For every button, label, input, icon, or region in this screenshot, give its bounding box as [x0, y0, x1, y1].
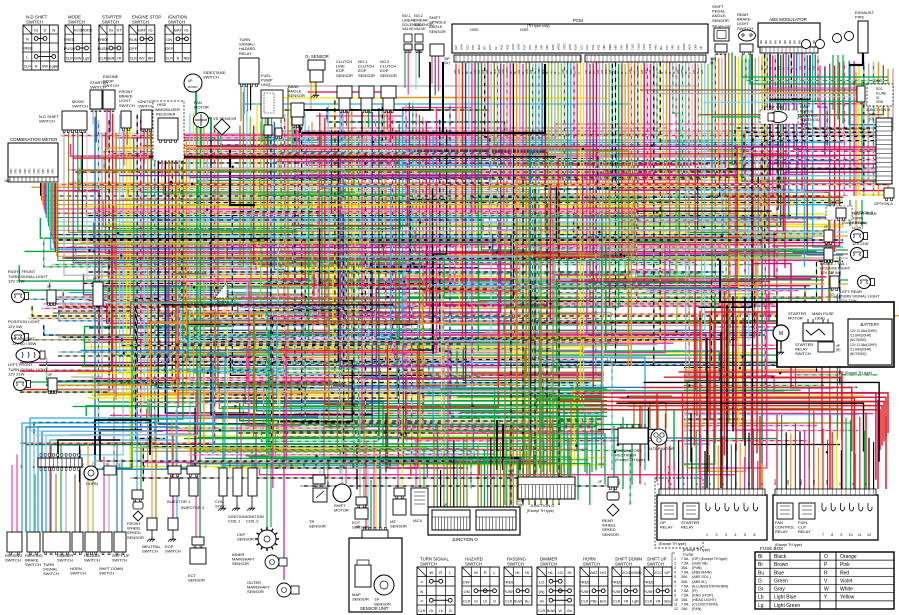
- svg-text:IMMOBILIZER: IMMOBILIZER: [155, 108, 180, 112]
- svg-text:CLR: CLR: [463, 600, 471, 604]
- svg-text:(CLOCK/TURN): (CLOCK/TURN): [692, 603, 718, 607]
- svg-text:SCS: SCS: [876, 87, 883, 91]
- svg-text:SPD: SPD: [41, 169, 45, 174]
- svg-text:R/W: R/W: [629, 69, 632, 74]
- svg-text:CLR: CLR: [166, 56, 174, 60]
- svg-text:Pink: Pink: [840, 562, 850, 568]
- svg-text:MAP: MAP: [477, 44, 481, 50]
- svg-text:LSV2: LSV2: [648, 43, 652, 50]
- svg-text:(Except TH type): (Except TH type): [527, 509, 554, 513]
- svg-text:GND: GND: [876, 100, 884, 104]
- svg-text:PIPE: PIPE: [855, 15, 864, 20]
- svg-text:Orange: Orange: [840, 554, 857, 560]
- svg-text:Bl: Bl: [758, 554, 762, 560]
- svg-text:PUSH: PUSH: [64, 46, 75, 51]
- svg-text:Black: Black: [774, 554, 787, 560]
- svg-text:ANG: ANG: [654, 44, 658, 50]
- svg-text:15A: 15A: [681, 598, 688, 602]
- svg-text:G/B: G/B: [601, 69, 604, 74]
- svg-text:G/B: G/B: [693, 69, 696, 74]
- svg-text:W/G: W/G: [542, 69, 545, 74]
- svg-text:G/B: G/B: [454, 69, 457, 74]
- svg-text:(W): (W): [518, 503, 523, 507]
- svg-text:SENSOR: SENSOR: [247, 589, 264, 594]
- svg-text:VALVE: VALVE: [800, 123, 812, 127]
- svg-text:Br: Br: [490, 71, 493, 74]
- svg-text:MODE: MODE: [81, 28, 93, 33]
- svg-text:Gr: Gr: [787, 67, 790, 70]
- svg-text:ABS: ABS: [614, 45, 618, 50]
- svg-text:IAT: IAT: [483, 46, 487, 50]
- svg-text:LgR: LgR: [632, 600, 639, 604]
- svg-text:SPD: SPD: [32, 169, 36, 174]
- svg-text:MR: MR: [783, 40, 787, 44]
- svg-text:CLR: CLR: [24, 65, 32, 69]
- svg-text:CLR: CLR: [538, 609, 546, 613]
- svg-text:SENSOR: SENSOR: [127, 535, 144, 540]
- svg-text:VCC: VCC: [654, 570, 663, 575]
- svg-text:M: M: [779, 331, 783, 337]
- svg-text:Br: Br: [522, 71, 525, 74]
- svg-text:Br: Br: [661, 71, 664, 74]
- svg-text:SENSOR: SENSOR: [712, 18, 729, 23]
- svg-text:IG: IG: [184, 28, 188, 33]
- svg-text:PCP: PCP: [522, 44, 526, 50]
- svg-text:SENSOR: SENSOR: [390, 524, 407, 529]
- svg-text:IG: IG: [109, 28, 113, 33]
- svg-text:12: 12: [867, 533, 871, 537]
- svg-text:CLU2: CLU2: [636, 43, 640, 50]
- svg-text:Y/R: Y/R: [253, 464, 257, 468]
- svg-text:SENSOR: SENSOR: [237, 537, 254, 542]
- svg-text:SWITCH: SWITCH: [25, 562, 41, 567]
- svg-text:SHIFT UP: SHIFT UP: [112, 554, 130, 558]
- svg-text:SPD: SPD: [671, 45, 675, 50]
- svg-text:SWITCH: SWITCH: [5, 558, 21, 563]
- svg-text:(NC750KD): (NC750KD): [850, 338, 866, 342]
- svg-text:R/W: R/W: [786, 479, 790, 485]
- svg-text:W/G: W/G: [761, 65, 764, 70]
- svg-text:HORN: HORN: [86, 481, 98, 486]
- svg-text:7: 7: [674, 584, 676, 588]
- svg-text:R/W: R/W: [413, 462, 417, 468]
- svg-text:(N): (N): [539, 589, 545, 594]
- svg-text:12: 12: [674, 607, 678, 611]
- svg-text:R: R: [695, 483, 699, 485]
- svg-text:CLU1: CLU1: [631, 43, 635, 50]
- svg-text:STRC: STRC: [562, 43, 566, 50]
- svg-text:Gr: Gr: [783, 67, 786, 70]
- svg-text:COIL 1: COIL 1: [228, 519, 241, 524]
- svg-text:7.5A: 7.5A: [681, 589, 689, 593]
- svg-text:G/B: G/B: [388, 463, 392, 468]
- svg-text:LG1: LG1: [579, 45, 583, 50]
- svg-text:SENSOR: SENSOR: [380, 73, 397, 78]
- svg-text:Bu/O: Bu/O: [773, 479, 777, 485]
- svg-text:RELAY: RELAY: [775, 529, 788, 534]
- svg-text:N: N: [420, 589, 423, 594]
- svg-text:FREE: FREE: [22, 46, 33, 51]
- svg-text:R/W: R/W: [812, 479, 816, 485]
- svg-text:G/B: G/B: [609, 69, 612, 74]
- svg-text:HO: HO: [600, 570, 606, 575]
- svg-text:UP: UP: [664, 570, 670, 575]
- svg-text:G/B: G/B: [302, 463, 306, 468]
- svg-text:3: 3: [725, 533, 727, 537]
- svg-text:Gr: Gr: [593, 71, 596, 74]
- svg-text:SENSOR: SENSOR: [336, 73, 353, 78]
- svg-text:O/B: O/B: [538, 69, 541, 74]
- svg-text:EVAP: EVAP: [800, 105, 810, 109]
- svg-text:SWITCH: SWITCH: [647, 562, 664, 567]
- svg-text:Gr: Gr: [774, 67, 777, 70]
- svg-text:12V 21W: 12V 21W: [8, 279, 25, 284]
- svg-text:OPTION A: OPTION A: [874, 201, 893, 206]
- svg-text:SWITCH: SWITCH: [132, 20, 149, 25]
- svg-text:BrG: BrG: [600, 600, 607, 604]
- svg-text:O: O: [493, 600, 496, 604]
- svg-text:IGP: IGP: [454, 45, 458, 50]
- svg-text:Violet: Violet: [840, 578, 853, 584]
- svg-text:MOTOR: MOTOR: [334, 508, 349, 513]
- svg-text:Lb: Lb: [439, 609, 443, 613]
- svg-text:YR: YR: [655, 600, 660, 604]
- svg-text:R/W: R/W: [526, 69, 529, 74]
- svg-text:SHIFT DOWN: SHIFT DOWN: [99, 567, 123, 571]
- svg-text:W/G: W/G: [605, 69, 608, 74]
- svg-text:12V 11.0Ah(10HR): 12V 11.0Ah(10HR): [850, 343, 877, 347]
- svg-text:SWITCH: SWITCH: [168, 20, 185, 25]
- svg-text:IACV: IACV: [688, 44, 692, 50]
- svg-text:BAT: BAT: [138, 28, 146, 33]
- svg-text:1: 1: [706, 533, 708, 537]
- svg-text:CLR: CLR: [581, 600, 589, 604]
- svg-text:10: 10: [674, 598, 678, 602]
- svg-text:SWITCH: SWITCH: [57, 558, 73, 563]
- svg-text:PUSH: PUSH: [503, 589, 514, 594]
- svg-text:LO: LO: [539, 580, 544, 585]
- svg-text:30A: 30A: [681, 580, 688, 584]
- svg-text:PUSH: PUSH: [611, 589, 622, 594]
- svg-text:G/B: G/B: [800, 65, 803, 70]
- svg-text:SWITCH: SWITCH: [68, 20, 85, 25]
- svg-text:CLR: CLR: [613, 600, 621, 604]
- svg-text:SWITCH: SWITCH: [26, 20, 43, 25]
- svg-text:BR: BR: [148, 56, 153, 60]
- svg-text:IG: IG: [148, 28, 152, 33]
- svg-text:7.5A: 7.5A: [681, 571, 689, 575]
- svg-text:K-LINE: K-LINE: [876, 91, 886, 95]
- svg-text:2: 2: [716, 533, 718, 537]
- svg-text:R: R: [484, 570, 487, 575]
- svg-text:11: 11: [858, 533, 862, 537]
- svg-text:SHFT: SHFT: [625, 43, 629, 50]
- svg-text:HISS: HISS: [470, 28, 479, 32]
- svg-text:(ABS M.): (ABS M.): [692, 580, 707, 584]
- svg-text:(ILLUMI/STOP/HORN): (ILLUMI/STOP/HORN): [692, 584, 728, 588]
- svg-text:(Except TH type): (Except TH type): [659, 542, 686, 546]
- svg-text:Gr: Gr: [613, 71, 616, 74]
- svg-text:CLR: CLR: [645, 600, 653, 604]
- svg-text:(TH type only): (TH type only): [762, 105, 783, 109]
- svg-text:SENSOR: SENSOR: [352, 597, 369, 602]
- svg-text:Br: Br: [669, 71, 672, 74]
- svg-text:PUSH: PUSH: [97, 46, 108, 51]
- svg-text:P: P: [721, 483, 725, 485]
- svg-text:IACV: IACV: [413, 518, 423, 523]
- svg-text:G/B: G/B: [265, 463, 269, 468]
- svg-text:HISS: HISS: [568, 44, 572, 50]
- svg-text:RUN: RUN: [129, 37, 138, 42]
- svg-text:Y/R: Y/R: [154, 464, 158, 468]
- svg-text:B/W: B/W: [290, 463, 294, 468]
- svg-text:SWITCH: SWITCH: [39, 119, 55, 124]
- svg-text:SPD: SPD: [9, 169, 13, 174]
- svg-text:NO.2: NO.2: [414, 14, 423, 18]
- svg-text:Y/R: Y/R: [474, 70, 477, 74]
- svg-text:SWITCH: SWITCH: [84, 558, 100, 563]
- svg-text:LINEAR: LINEAR: [414, 18, 428, 22]
- svg-text:NEP: NEP: [545, 44, 549, 50]
- svg-text:SWITCH: SWITCH: [72, 104, 88, 109]
- svg-text:(O): (O): [830, 293, 835, 297]
- svg-text:SWITCH: SWITCH: [70, 571, 86, 576]
- svg-text:VB: VB: [699, 46, 703, 50]
- svg-text:MIL: MIL: [659, 45, 663, 50]
- svg-text:Light Green: Light Green: [774, 603, 800, 609]
- svg-text:ALTERNATOR: ALTERNATOR: [648, 446, 674, 451]
- svg-text:GBu: GBu: [664, 600, 671, 604]
- svg-text:HI: HI: [540, 599, 544, 604]
- svg-text:(KD type only): (KD type only): [712, 24, 731, 28]
- svg-text:1: 1: [674, 557, 676, 561]
- svg-text:VBU: VBU: [602, 45, 606, 50]
- svg-text:VALVE: VALVE: [414, 27, 426, 31]
- svg-text:COMBINATION METER: COMBINATION METER: [10, 137, 57, 142]
- svg-text:9: 9: [840, 533, 842, 537]
- svg-text:Brown: Brown: [774, 562, 788, 568]
- svg-text:Blue: Blue: [774, 570, 784, 576]
- svg-text:5: 5: [674, 575, 676, 579]
- svg-text:(FI): (FI): [692, 589, 698, 593]
- svg-text:O/B: O/B: [482, 69, 485, 74]
- svg-text:6P: 6P: [93, 277, 97, 281]
- svg-text:SENSOR: SENSOR: [602, 532, 619, 537]
- svg-text:SWITCH: SWITCH: [583, 562, 600, 567]
- svg-text:8: 8: [674, 589, 676, 593]
- svg-text:FPC: FPC: [676, 45, 680, 50]
- svg-text:O/B: O/B: [425, 463, 429, 468]
- svg-text:7.5A: 7.5A: [681, 593, 689, 597]
- svg-text:SPD: SPD: [18, 169, 22, 174]
- svg-text:SENSOR: SENSOR: [309, 524, 326, 529]
- svg-text:RELAY: RELAY: [239, 51, 252, 56]
- svg-text:HL: HL: [515, 570, 521, 575]
- svg-text:(ABS MAIN): (ABS MAIN): [692, 571, 712, 575]
- svg-text:SENSOR: SENSOR: [232, 561, 249, 566]
- svg-text:ON: ON: [166, 37, 172, 42]
- svg-text:ON: ON: [464, 589, 470, 594]
- svg-text:CLR: CLR: [66, 56, 74, 60]
- svg-text:MR: MR: [778, 40, 782, 44]
- svg-text:Y/R: Y/R: [585, 70, 588, 74]
- svg-text:8: 8: [831, 533, 833, 537]
- svg-text:EOP: EOP: [551, 44, 555, 50]
- svg-text:R: R: [824, 570, 828, 576]
- svg-text:HL: HL: [548, 570, 554, 575]
- svg-text:MR: MR: [793, 40, 797, 44]
- svg-text:(PVB): (PVB): [692, 566, 702, 570]
- svg-text:SWITCH: SWITCH: [102, 20, 119, 25]
- svg-text:OFF: OFF: [463, 580, 472, 585]
- svg-text:FREE: FREE: [503, 580, 514, 585]
- svg-text:FREE: FREE: [98, 37, 109, 42]
- svg-text:(O): (O): [869, 117, 874, 121]
- svg-text:Y/R: Y/R: [778, 66, 781, 70]
- svg-text:Bu: Bu: [758, 570, 764, 576]
- svg-text:R: R: [439, 570, 442, 575]
- svg-text:G/B: G/B: [597, 69, 600, 74]
- svg-text:OFF: OFF: [165, 46, 174, 51]
- svg-text:OFF: OFF: [129, 46, 138, 51]
- svg-text:DOWN: DOWN: [188, 85, 198, 89]
- svg-text:Gr: Gr: [758, 587, 764, 593]
- svg-text:SWITCH: SWITCH: [99, 572, 114, 576]
- svg-text:R/W: R/W: [502, 69, 505, 74]
- svg-text:N: N: [52, 28, 55, 33]
- svg-text:G/B: G/B: [314, 463, 318, 468]
- svg-text:W: W: [474, 570, 478, 575]
- svg-text:Br: Br: [621, 71, 624, 74]
- svg-text:Gr: Gr: [665, 71, 668, 74]
- svg-text:Lb: Lb: [758, 595, 764, 601]
- svg-text:Gr: Gr: [617, 71, 620, 74]
- svg-text:R: R: [734, 483, 738, 485]
- svg-text:O/B: O/B: [518, 69, 521, 74]
- svg-text:Gray: Gray: [774, 587, 785, 593]
- svg-text:RECEIVER: RECEIVER: [156, 113, 176, 117]
- svg-text:Lg/R: Lg/R: [363, 462, 367, 468]
- svg-text:RELAY: RELAY: [798, 529, 811, 534]
- svg-text:G: G: [643, 483, 647, 485]
- svg-text:(NC700KD): (NC700KD): [850, 352, 866, 356]
- svg-text:CLR: CLR: [505, 600, 513, 604]
- svg-text:W/G: W/G: [351, 463, 355, 468]
- svg-text:12V 21W: 12V 21W: [852, 241, 869, 246]
- svg-text:FREE: FREE: [64, 37, 75, 42]
- svg-text:(TH type only): (TH type only): [527, 24, 550, 28]
- svg-text:/11.6Ah(20HR): /11.6Ah(20HR): [850, 347, 871, 351]
- svg-text:R: R: [177, 56, 180, 60]
- svg-text:INJ2: INJ2: [505, 44, 509, 50]
- svg-text:UP: UP: [188, 79, 192, 83]
- svg-text:R/W: R/W: [562, 69, 565, 74]
- svg-text:10: 10: [849, 533, 853, 537]
- svg-text:BrW: BrW: [74, 56, 82, 60]
- svg-text:Light Blue: Light Blue: [774, 595, 796, 601]
- svg-text:7.5A: 7.5A: [681, 562, 689, 566]
- svg-text:PG2: PG2: [597, 44, 601, 50]
- svg-text:IG: IG: [34, 28, 38, 33]
- svg-text:BuW: BuW: [547, 609, 555, 613]
- svg-text:TPS: TPS: [471, 45, 475, 50]
- svg-text:BW: BW: [42, 65, 48, 69]
- svg-text:(HEAD LIGHT): (HEAD LIGHT): [692, 598, 716, 602]
- svg-text:15A: 15A: [681, 607, 688, 611]
- svg-text:FREE: FREE: [643, 580, 654, 585]
- svg-text:Lg/R: Lg/R: [327, 462, 331, 468]
- svg-text:R: R: [747, 483, 751, 485]
- svg-text:SPD: SPD: [23, 169, 27, 174]
- svg-text:NO.1: NO.1: [402, 14, 411, 18]
- svg-text:RELAY: RELAY: [660, 525, 673, 530]
- svg-text:HISS: HISS: [157, 102, 167, 107]
- svg-text:W/G: W/G: [645, 69, 648, 74]
- svg-text:2P: 2P: [824, 225, 828, 229]
- svg-text:R: R: [35, 65, 38, 69]
- svg-text:SPD: SPD: [50, 169, 54, 174]
- svg-text:Lb: Lb: [483, 600, 487, 604]
- svg-text:SPD: SPD: [14, 169, 18, 174]
- svg-text:R: R: [760, 483, 764, 485]
- svg-text:ECT: ECT: [488, 44, 492, 50]
- svg-text:SWITCH: SWITCH: [119, 103, 135, 108]
- svg-text:PBu: PBu: [591, 600, 598, 604]
- svg-text:SWITCH: SWITCH: [165, 549, 181, 554]
- svg-text:ST: ST: [116, 28, 122, 33]
- svg-text:VALVE: VALVE: [402, 27, 414, 31]
- svg-text:IGN1: IGN1: [511, 43, 515, 50]
- svg-text:(G): (G): [508, 473, 513, 477]
- svg-text:Green: Green: [774, 578, 788, 584]
- svg-text:W: W: [824, 587, 829, 593]
- svg-text:Y/R: Y/R: [804, 66, 807, 70]
- svg-text:MOTOR: MOTOR: [194, 105, 209, 110]
- svg-text:Gr: Gr: [574, 71, 577, 74]
- svg-text:RELAY: RELAY: [681, 525, 694, 530]
- svg-text:DOWN: DOWN: [629, 570, 642, 575]
- svg-text:3P: 3P: [47, 285, 51, 289]
- svg-text:Br: Br: [31, 465, 35, 468]
- svg-text:BuR: BuR: [108, 56, 115, 60]
- svg-text:KLIN: KLIN: [574, 44, 578, 50]
- svg-text:SWITCH: SWITCH: [138, 104, 154, 109]
- svg-text:INJECTOR 2: INJECTOR 2: [181, 505, 205, 510]
- svg-text:W/G: W/G: [570, 69, 573, 74]
- svg-text:MR: MR: [759, 40, 763, 44]
- svg-text:INJECTOR 1: INJECTOR 1: [167, 499, 191, 504]
- svg-text:SENSOR: SENSOR: [352, 525, 369, 530]
- svg-text:Bu: Bu: [204, 464, 208, 468]
- svg-text:MR: MR: [797, 40, 801, 44]
- svg-text:B: B: [851, 483, 855, 485]
- svg-text:R: R: [682, 483, 686, 485]
- svg-text:TRS: TRS: [619, 45, 623, 50]
- svg-text:9: 9: [674, 593, 676, 597]
- svg-text:30A: 30A: [681, 566, 688, 570]
- svg-text:PURGE: PURGE: [800, 109, 814, 113]
- svg-text:VSP: VSP: [540, 45, 544, 50]
- svg-text:3P: 3P: [48, 373, 52, 377]
- svg-text:(30A): (30A): [815, 316, 825, 321]
- svg-text:4: 4: [674, 571, 676, 575]
- svg-text:LIGHT: LIGHT: [852, 225, 864, 230]
- svg-text:WY: WY: [139, 56, 145, 60]
- svg-text:SWITCH: SWITCH: [795, 351, 811, 356]
- svg-text:SENSOR: SENSOR: [288, 93, 305, 98]
- svg-text:R/W: R/W: [458, 69, 461, 74]
- svg-text:R: R: [630, 483, 634, 485]
